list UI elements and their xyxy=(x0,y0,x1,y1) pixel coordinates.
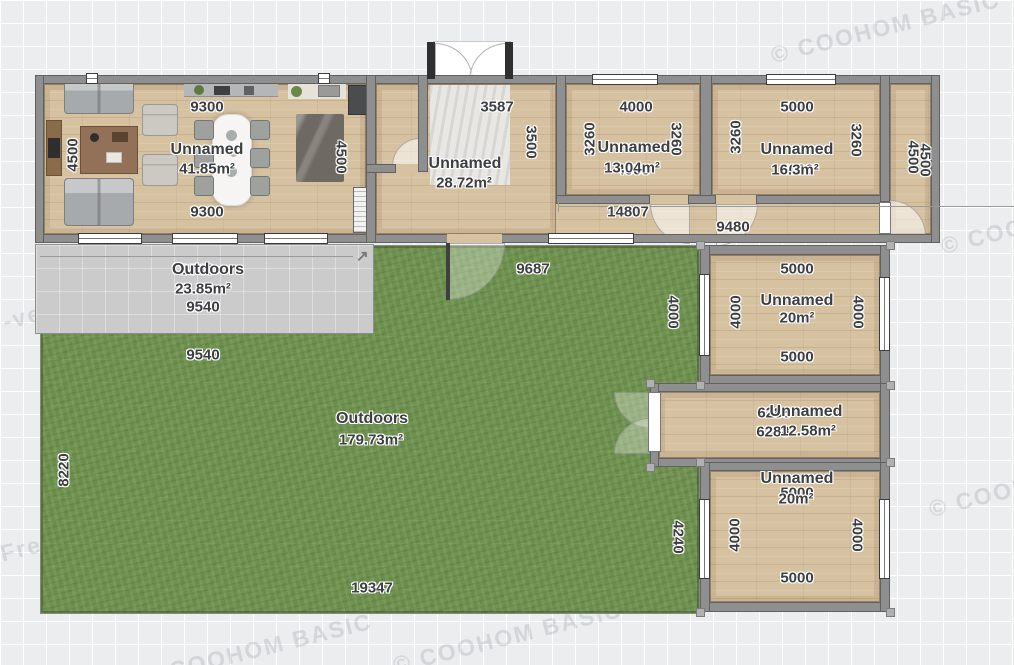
wall-joint[interactable] xyxy=(696,608,705,617)
radiator[interactable] xyxy=(353,187,367,233)
window-tab[interactable] xyxy=(86,73,98,84)
room-mid-wall-top[interactable] xyxy=(700,245,890,255)
window[interactable] xyxy=(879,277,890,351)
window[interactable] xyxy=(699,499,710,579)
dim-bedroom-b-right: 3260 xyxy=(849,123,864,156)
dim-garden-right: 4240 xyxy=(671,520,686,553)
wall-joint[interactable] xyxy=(696,458,705,467)
dim-room-bottom-bottom: 5000 xyxy=(780,571,813,586)
hall-right-wall-top[interactable] xyxy=(650,383,890,392)
dim-hall-partial: 9480 xyxy=(716,220,749,235)
room-name-bedroom-b: Unnamed xyxy=(761,142,834,158)
dim-room-mid-right: 4000 xyxy=(851,295,866,328)
window[interactable] xyxy=(548,233,634,244)
dim-living-bottom: 9300 xyxy=(190,205,223,220)
wall-joint[interactable] xyxy=(886,241,895,250)
dim-room-bottom-left: 4000 xyxy=(728,518,743,551)
dim-bedroom-b-left: 3260 xyxy=(729,120,744,153)
decor-bowl xyxy=(90,133,99,142)
coffee-table[interactable] xyxy=(80,126,138,174)
room-name-bottom: Unnamed xyxy=(761,471,834,487)
wall-living-entry[interactable] xyxy=(366,75,376,243)
entrance-door-post xyxy=(427,42,435,79)
tray xyxy=(112,132,128,142)
dim-bedroom-a-right: 3260 xyxy=(669,122,684,155)
dim-room-mid-left: 4000 xyxy=(729,295,744,328)
room-area-bedroom-a: 13.04m² xyxy=(604,161,660,176)
dim-room-bottom-right: 4000 xyxy=(850,518,865,551)
dim-patio-bottom: 9540 xyxy=(186,300,219,315)
room-name-entry: Unnamed xyxy=(429,156,502,172)
room-area-bottom: 20m² xyxy=(778,492,813,507)
room-name-bedroom-a: Unnamed xyxy=(598,140,671,156)
bedroom-b-door-gap xyxy=(716,195,756,204)
room-area-hall-right: 12.58m² xyxy=(780,424,836,439)
dim-garden-top: 9687 xyxy=(516,262,549,277)
plate xyxy=(226,130,237,141)
armchair[interactable] xyxy=(142,154,178,186)
wall-joint[interactable] xyxy=(646,379,655,388)
room-bottom-wall-bottom[interactable] xyxy=(700,602,890,612)
sofa[interactable] xyxy=(64,80,134,114)
window[interactable] xyxy=(78,233,142,244)
floorplan-canvas: © COOHOM BASIC © COOHOM BASIC © COOHOM B… xyxy=(0,0,1014,665)
dim-living-left: 4500 xyxy=(66,138,81,171)
wall-entry-bedroom-a[interactable] xyxy=(556,75,566,204)
dim-hall-length: 14807 xyxy=(607,205,649,220)
wall-joint[interactable] xyxy=(696,241,705,250)
watermark: © COOHOM BASIC xyxy=(140,608,375,665)
room-area-living: 41.85m² xyxy=(179,162,235,177)
room-area-mid: 20m² xyxy=(779,311,814,326)
sofa[interactable] xyxy=(64,178,134,226)
sink[interactable] xyxy=(244,86,254,95)
dining-chair[interactable] xyxy=(250,120,270,140)
dim-garden-left: 8220 xyxy=(57,453,72,486)
room-name-garden: Outdoors xyxy=(336,411,408,427)
dim-living-top: 9300 xyxy=(190,100,223,115)
plant[interactable] xyxy=(291,86,302,97)
wall-alcove-right[interactable] xyxy=(418,75,428,172)
garden-door-leaf[interactable] xyxy=(446,243,450,300)
wall-bedroom-b-bottom[interactable] xyxy=(756,195,890,204)
garden-door-gap xyxy=(447,234,502,243)
dim-bedroom-a-top: 4000 xyxy=(619,100,652,115)
wall-alcove-bottom[interactable] xyxy=(366,164,396,173)
dining-chair[interactable] xyxy=(250,176,270,196)
wall-left[interactable] xyxy=(35,75,44,243)
book xyxy=(106,152,122,163)
room-area-garden: 179.73m² xyxy=(339,433,403,448)
dining-chair[interactable] xyxy=(194,120,214,140)
window[interactable] xyxy=(172,233,238,244)
room-area-entry: 28.72m² xyxy=(436,176,492,191)
dim-side-corridor-b: 4500 xyxy=(918,143,933,176)
window[interactable] xyxy=(699,274,710,356)
fridge[interactable] xyxy=(348,85,368,115)
stove[interactable] xyxy=(214,86,230,95)
wall-bedroom-a-b[interactable] xyxy=(700,75,712,204)
room-area-patio: 23.85m² xyxy=(175,282,231,297)
dim-room-mid-bottom: 5000 xyxy=(780,350,813,365)
dim-living-right: 4500 xyxy=(334,140,349,173)
dim-bedroom-b-top: 5000 xyxy=(780,100,813,115)
room-name-mid: Unnamed xyxy=(761,293,834,309)
room-name-living: Unnamed xyxy=(171,142,244,158)
wall-bedroom-mid[interactable] xyxy=(688,195,716,204)
dining-chair[interactable] xyxy=(250,148,270,168)
resize-arrow-icon[interactable]: ↗ xyxy=(356,247,369,265)
wall-joint[interactable] xyxy=(886,608,895,617)
tv[interactable] xyxy=(48,138,60,158)
window[interactable] xyxy=(879,499,890,579)
window-tab[interactable] xyxy=(318,73,330,84)
wall-joint[interactable] xyxy=(696,381,705,390)
wall-side-corridor[interactable] xyxy=(880,75,890,202)
hall-double-door[interactable] xyxy=(648,392,661,452)
watermark: © COOHOM BASIC xyxy=(926,440,1014,523)
room-name-hall-right: Unnamed xyxy=(770,404,843,420)
patio-dim-line xyxy=(40,256,353,257)
entrance-door-post xyxy=(505,42,513,79)
alcove-door-gap xyxy=(396,164,418,173)
window[interactable] xyxy=(592,74,658,85)
dim-garden-upper: 9540 xyxy=(186,348,219,363)
room-area-bedroom-b: 16.3m² xyxy=(771,163,819,178)
wall-joint[interactable] xyxy=(886,458,895,467)
room-name-patio: Outdoors xyxy=(172,262,244,278)
hall-right-wall-right[interactable] xyxy=(880,383,890,467)
hall-dim-tick xyxy=(558,201,559,212)
dim-bedroom-a-left: 3260 xyxy=(583,122,598,155)
window[interactable] xyxy=(766,74,836,85)
dim-room-mid-top: 5000 xyxy=(780,262,813,277)
bedroom-a-door-gap xyxy=(650,195,688,204)
watermark: © COOHOM BASIC xyxy=(938,177,1014,260)
wall-joint[interactable] xyxy=(646,463,655,472)
dining-chair[interactable] xyxy=(194,176,214,196)
wall-joint[interactable] xyxy=(886,381,895,390)
window[interactable] xyxy=(264,233,328,244)
armchair[interactable] xyxy=(142,104,178,136)
dim-garden-bottom: 19347 xyxy=(351,581,393,596)
dim-entry-right: 3500 xyxy=(524,125,539,158)
watermark: © COOHOM BASIC xyxy=(768,0,1003,69)
appliance[interactable] xyxy=(318,85,340,97)
dim-entry-top: 3587 xyxy=(480,100,513,115)
plant[interactable] xyxy=(194,85,204,95)
dim-room-mid-outer-left: 4000 xyxy=(666,295,681,328)
